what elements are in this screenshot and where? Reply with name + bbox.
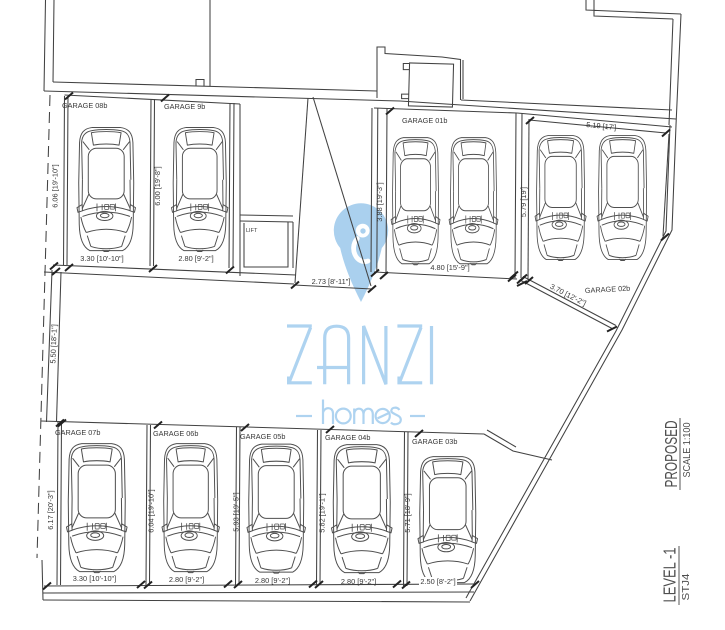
svg-text:GARAGE 03b: GARAGE 03b — [412, 437, 457, 446]
svg-text:LEVEL -1: LEVEL -1 — [660, 548, 680, 603]
svg-text:GARAGE 06b: GARAGE 06b — [153, 429, 198, 438]
svg-text:5.50 [18'-1"]: 5.50 [18'-1"] — [48, 324, 58, 364]
svg-text:4.80 [15'-9"]: 4.80 [15'-9"] — [430, 263, 469, 272]
svg-text:LIFT: LIFT — [246, 228, 258, 234]
svg-text:2.80 [9'-2"]: 2.80 [9'-2"] — [255, 576, 290, 585]
svg-text:GARAGE 05b: GARAGE 05b — [240, 432, 285, 441]
svg-text:6.06 [19'-10"]: 6.06 [19'-10"] — [51, 164, 60, 207]
svg-text:2.50 [8'-2"]: 2.50 [8'-2"] — [420, 577, 455, 586]
svg-text:5.79 [19']: 5.79 [19'] — [519, 187, 528, 217]
svg-text:6.17 [20'-3"]: 6.17 [20'-3"] — [46, 490, 55, 529]
svg-text:2.73 [8'-11"]: 2.73 [8'-11"] — [312, 277, 351, 286]
svg-text:5.93 [19'-5"]: 5.93 [19'-5"] — [232, 492, 241, 531]
svg-text:6.04 [19'-10"]: 6.04 [19'-10"] — [147, 489, 156, 532]
svg-text:3.88 [19'-3"]: 3.88 [19'-3"] — [375, 182, 384, 221]
svg-text:2.80 [9'-2"]: 2.80 [9'-2"] — [178, 254, 213, 263]
svg-text:GARAGE 08b: GARAGE 08b — [62, 101, 107, 110]
svg-text:PROPOSED: PROPOSED — [661, 421, 681, 488]
svg-text:SCALE 1:100: SCALE 1:100 — [681, 422, 693, 477]
svg-text:2.80 [9'-2"]: 2.80 [9'-2"] — [169, 575, 204, 584]
svg-text:5.82 [19'-1"]: 5.82 [19'-1"] — [318, 493, 327, 532]
svg-text:GARAGE 07b: GARAGE 07b — [55, 428, 100, 437]
svg-text:STJ4: STJ4 — [680, 573, 692, 600]
svg-text:3.30 [10'-10"]: 3.30 [10'-10"] — [80, 254, 123, 263]
svg-text:GARAGE 04b: GARAGE 04b — [325, 433, 370, 442]
svg-text:3.30 [10'-10"]: 3.30 [10'-10"] — [73, 574, 116, 583]
svg-text:2.80 [9'-2"]: 2.80 [9'-2"] — [341, 577, 376, 586]
svg-text:GARAGE 01b: GARAGE 01b — [402, 116, 447, 125]
svg-text:GARAGE 9b: GARAGE 9b — [164, 102, 205, 111]
svg-text:6.00 [19'-8"]: 6.00 [19'-8"] — [153, 166, 162, 205]
svg-text:5.71 [18'-9"]: 5.71 [18'-9"] — [403, 493, 412, 532]
